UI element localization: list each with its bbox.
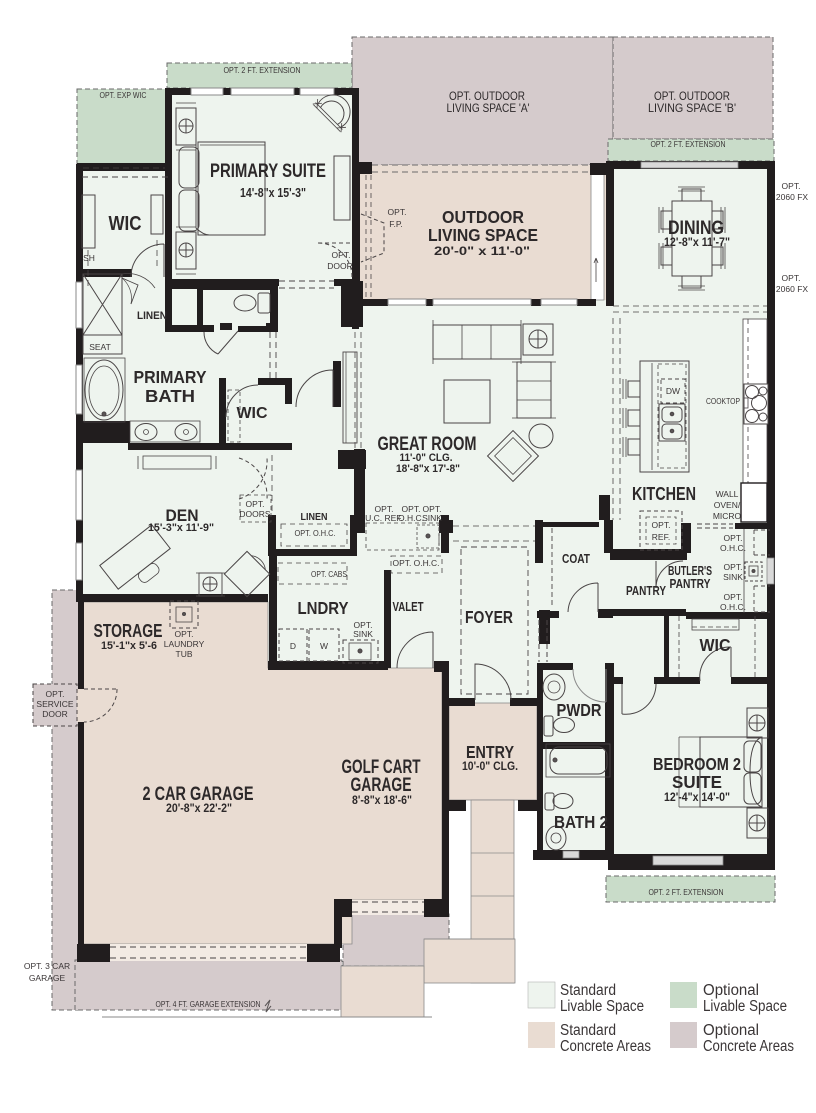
svg-text:OPT. EXP WIC: OPT. EXP WIC [100,90,147,100]
svg-text:20'-0" x 11'-0": 20'-0" x 11'-0" [434,244,530,258]
svg-text:OUTDOOR: OUTDOOR [442,207,524,227]
svg-text:PRIMARY SUITE: PRIMARY SUITE [210,161,326,182]
svg-text:D: D [290,641,296,651]
svg-text:PRIMARY: PRIMARY [134,367,207,387]
svg-text:20'-8"x 22'-2": 20'-8"x 22'-2" [166,801,232,815]
svg-text:LNDRY: LNDRY [298,598,349,618]
svg-text:8'-8"x 18'-6": 8'-8"x 18'-6" [352,795,412,807]
svg-text:SEAT: SEAT [89,342,111,352]
svg-text:SINK: SINK [353,629,373,639]
svg-text:STORAGE: STORAGE [94,621,163,641]
svg-text:LINEN: LINEN [301,511,328,523]
svg-text:OPT.: OPT. [246,499,265,509]
svg-text:OPT.: OPT. [724,562,743,572]
svg-text:MICRO: MICRO [713,511,742,521]
svg-text:SUITE: SUITE [672,772,722,792]
svg-text:DOOR: DOOR [327,261,353,271]
svg-text:OPT.: OPT. [724,533,743,543]
svg-text:TUB: TUB [176,649,193,659]
svg-text:DINING: DINING [668,218,724,239]
svg-text:PWDR: PWDR [557,700,602,720]
svg-text:Concrete Areas: Concrete Areas [560,1038,651,1055]
svg-text:ENTRY: ENTRY [466,742,514,762]
svg-text:OPT.: OPT. [332,250,351,260]
svg-text:SH: SH [83,253,95,263]
svg-text:2060 FX: 2060 FX [776,284,808,294]
svg-text:VALET: VALET [393,600,424,614]
svg-text:Standard: Standard [560,982,616,999]
svg-text:BEDROOM 2: BEDROOM 2 [653,754,741,774]
svg-text:LIVING SPACE: LIVING SPACE [428,225,538,245]
svg-text:BUTLER'S: BUTLER'S [668,564,712,578]
svg-text:OPT. O.H.C.: OPT. O.H.C. [295,528,336,538]
svg-text:OPT. 3 CAR: OPT. 3 CAR [24,961,70,971]
svg-text:Livable Space: Livable Space [703,998,787,1015]
svg-text:OPT.: OPT. [724,592,743,602]
svg-text:OPT. 2 FT. EXTENSION: OPT. 2 FT. EXTENSION [651,139,726,149]
svg-text:10'-0" CLG.: 10'-0" CLG. [462,761,518,773]
svg-text:15'-1"x 5'-6: 15'-1"x 5'-6 [101,640,157,652]
svg-text:OPT. CABS: OPT. CABS [311,569,347,579]
svg-text:OPT. 2 FT. EXTENSION: OPT. 2 FT. EXTENSION [649,887,724,897]
svg-text:O.H.C.: O.H.C. [398,513,424,523]
svg-text:Livable Space: Livable Space [560,998,644,1015]
svg-text:F.P.: F.P. [389,219,403,229]
svg-text:BATH: BATH [145,386,195,406]
svg-text:DOORS: DOORS [239,509,271,519]
svg-text:GARAGE: GARAGE [351,775,412,796]
svg-text:PANTRY: PANTRY [670,577,712,591]
svg-text:Optional: Optional [703,982,759,999]
svg-text:OPT. 2 FT. EXTENSION: OPT. 2 FT. EXTENSION [224,65,301,75]
svg-text:15'-3"x 11'-9": 15'-3"x 11'-9" [148,522,214,534]
svg-text:WIC: WIC [700,635,731,655]
svg-text:WALL: WALL [716,489,739,499]
svg-text:14'-8"x 15'-3": 14'-8"x 15'-3" [240,186,306,200]
svg-text:WIC: WIC [109,213,142,235]
svg-text:OPT. O.H.C.: OPT. O.H.C. [393,558,440,568]
svg-text:O.H.C.: O.H.C. [720,543,746,553]
svg-text:12'-4"x 14'-0": 12'-4"x 14'-0" [664,792,730,804]
svg-text:SINK: SINK [422,513,442,523]
svg-text:LIVING SPACE 'A': LIVING SPACE 'A' [447,101,530,115]
svg-text:OPT.: OPT. [782,273,801,283]
svg-text:DOOR: DOOR [42,709,68,719]
svg-text:FOYER: FOYER [465,607,513,627]
svg-text:OPT.: OPT. [782,181,801,191]
svg-text:COOKTOP: COOKTOP [706,396,740,406]
svg-text:REF.: REF. [652,532,670,542]
svg-text:18'-8"x 17'-8": 18'-8"x 17'-8" [396,463,460,475]
svg-text:OPT.: OPT. [175,629,194,639]
svg-text:2060 FX: 2060 FX [776,192,808,202]
svg-text:COAT: COAT [562,552,590,566]
svg-text:O.H.C.: O.H.C. [720,602,746,612]
svg-text:GARAGE: GARAGE [29,973,66,983]
svg-text:12'-8"x 11'-7": 12'-8"x 11'-7" [664,237,730,249]
svg-text:BATH 2: BATH 2 [554,812,608,832]
svg-text:SERVICE: SERVICE [36,699,73,709]
svg-text:Optional: Optional [703,1022,759,1039]
svg-text:LINEN: LINEN [137,310,167,322]
svg-text:WIC: WIC [237,405,268,422]
svg-text:SINK: SINK [723,572,743,582]
svg-text:Standard: Standard [560,1022,616,1039]
svg-text:OPT.: OPT. [388,207,407,217]
svg-text:PANTRY: PANTRY [626,584,667,598]
svg-text:W: W [320,641,328,651]
svg-text:LAUNDRY: LAUNDRY [164,639,205,649]
svg-text:Concrete Areas: Concrete Areas [703,1038,794,1055]
svg-text:OVEN/: OVEN/ [714,500,741,510]
svg-text:DW: DW [666,386,680,396]
svg-text:OPT. 4 FT. GARAGE EXTENSION: OPT. 4 FT. GARAGE EXTENSION [156,999,261,1009]
svg-text:OPT.: OPT. [46,689,65,699]
svg-text:OPT.: OPT. [652,520,671,530]
svg-text:KITCHEN: KITCHEN [632,483,696,504]
svg-text:LIVING SPACE 'B': LIVING SPACE 'B' [648,101,736,115]
